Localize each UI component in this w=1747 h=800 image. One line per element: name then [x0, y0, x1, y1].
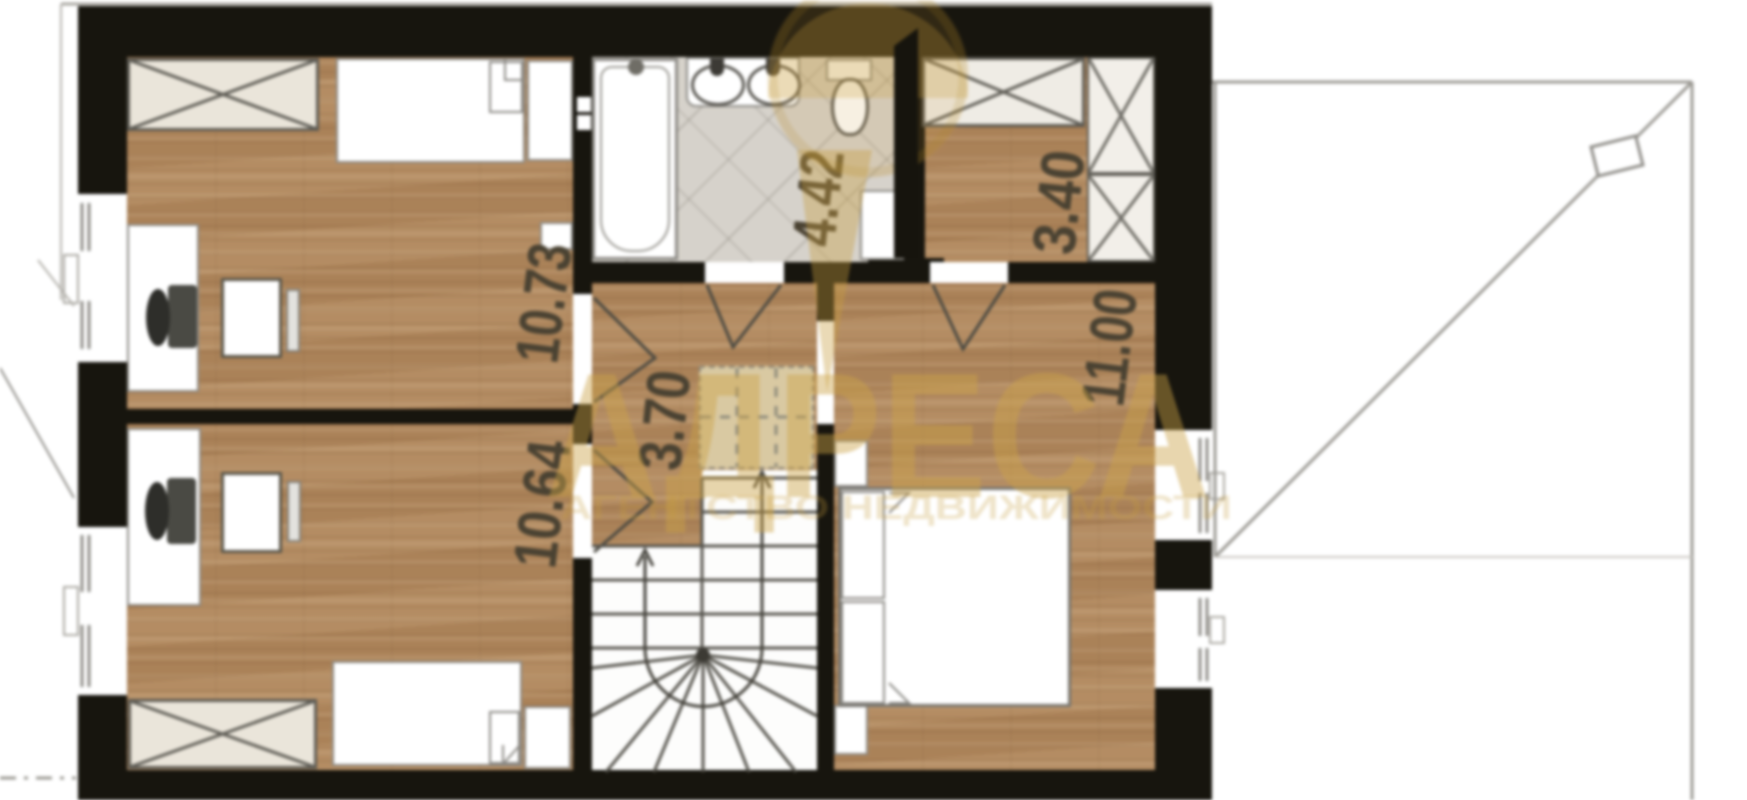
svg-text:АГЕНТСТВО НЕДВИЖИМОСТИ: АГЕНТСТВО НЕДВИЖИМОСТИ	[560, 489, 1232, 527]
